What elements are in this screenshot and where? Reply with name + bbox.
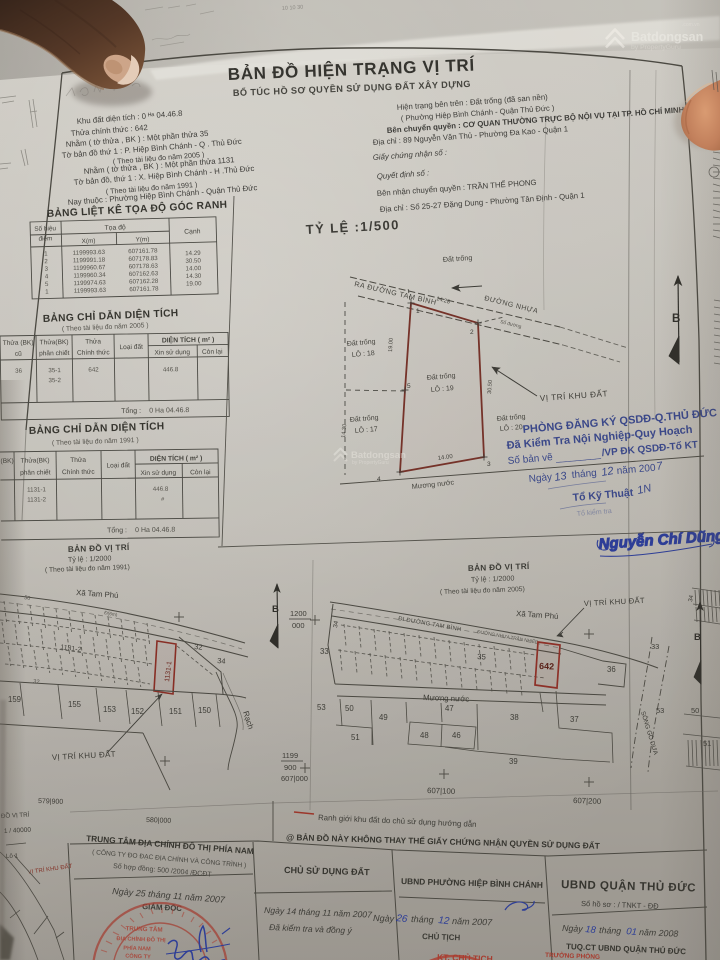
svg-text:by PropertyGuru: by PropertyGuru	[352, 460, 389, 466]
svg-text:Batdongsan: Batdongsan	[631, 30, 703, 44]
svg-text:.com.vn: .com.vn	[682, 22, 700, 28]
svg-text:by PropertyGuru: by PropertyGuru	[631, 44, 681, 51]
